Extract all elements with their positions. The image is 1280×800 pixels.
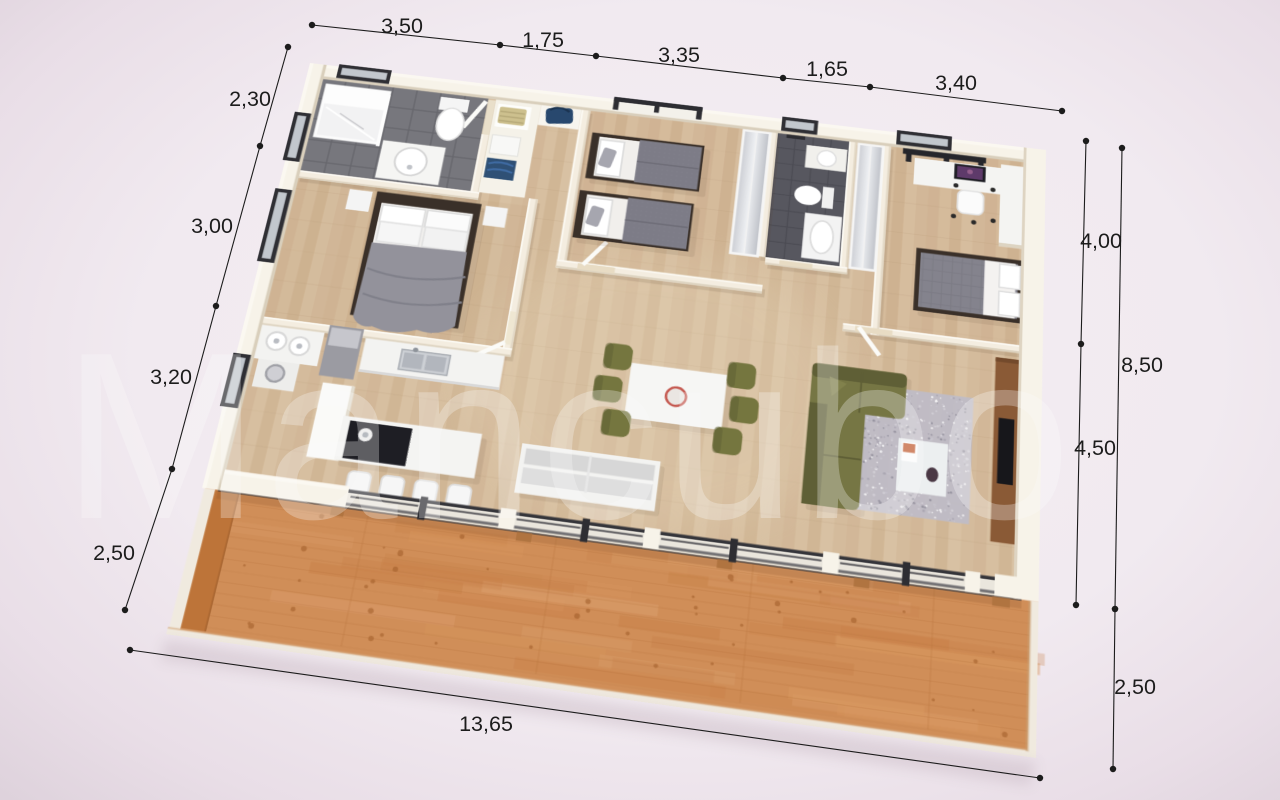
svg-text:4,00: 4,00 [1080, 229, 1122, 253]
svg-text:13,65: 13,65 [459, 712, 513, 736]
svg-text:3,35: 3,35 [658, 43, 700, 67]
svg-text:2,50: 2,50 [93, 541, 135, 565]
svg-text:8,50: 8,50 [1121, 353, 1163, 377]
svg-text:2,30: 2,30 [229, 87, 271, 111]
svg-text:2,50: 2,50 [1114, 675, 1156, 699]
svg-text:3,00: 3,00 [191, 214, 233, 238]
svg-text:3,40: 3,40 [935, 71, 977, 95]
svg-text:3,50: 3,50 [381, 14, 423, 38]
svg-text:1,65: 1,65 [806, 57, 848, 81]
svg-text:4,50: 4,50 [1074, 436, 1116, 460]
svg-text:3,20: 3,20 [150, 365, 192, 389]
svg-text:1,75: 1,75 [522, 28, 564, 52]
